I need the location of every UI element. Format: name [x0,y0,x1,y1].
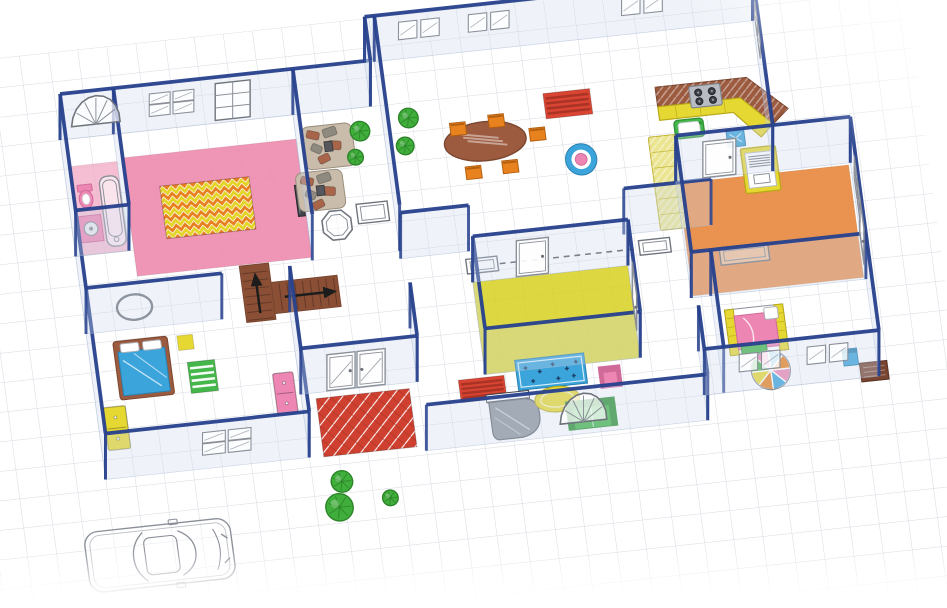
corner-fade [0,0,947,608]
floor-plan-stage [0,0,947,608]
bottom-fade [0,548,947,608]
floor-plan-illustration [0,0,947,608]
